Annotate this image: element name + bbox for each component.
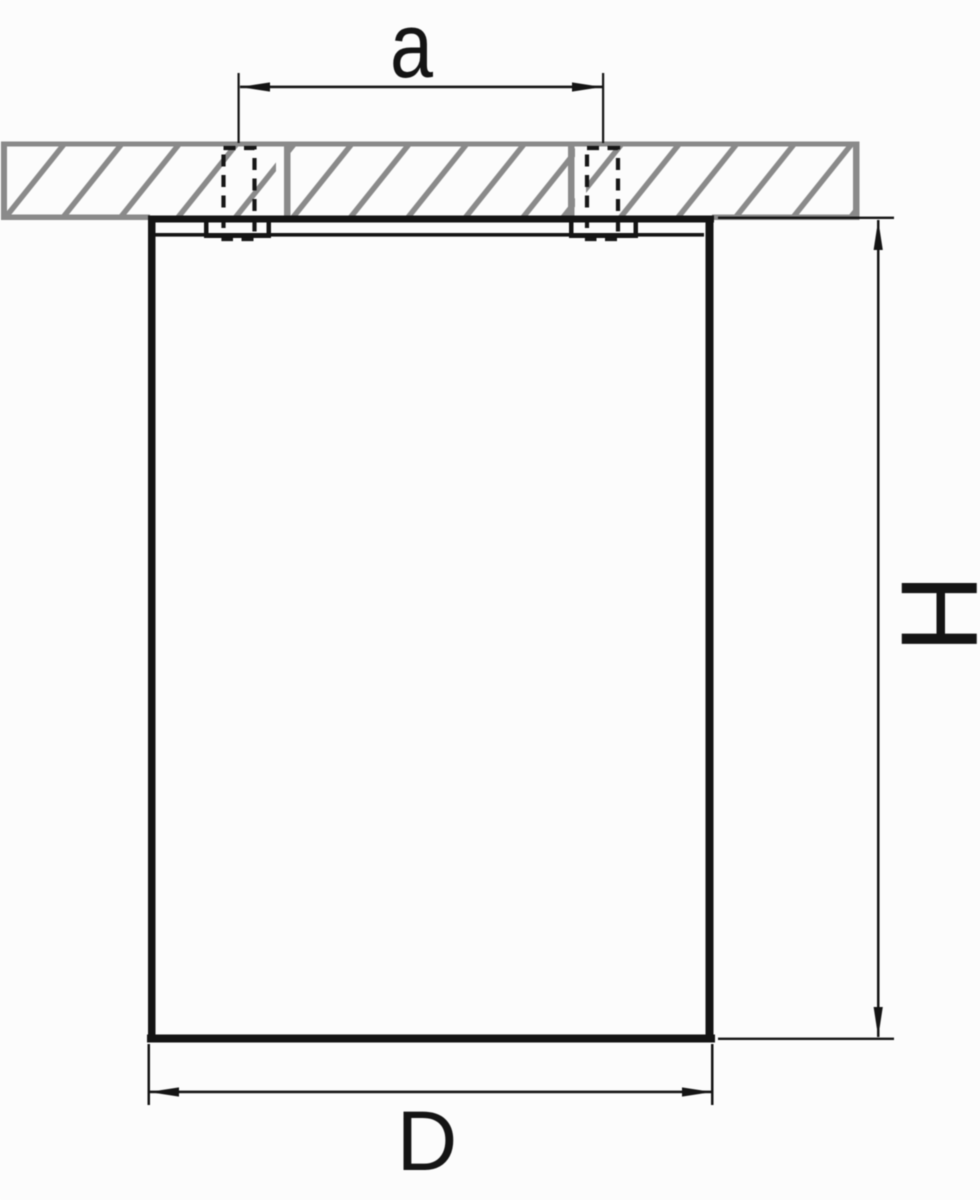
svg-text:H: H [878,574,980,653]
svg-text:a: a [390,0,434,98]
svg-text:D: D [397,1094,458,1188]
